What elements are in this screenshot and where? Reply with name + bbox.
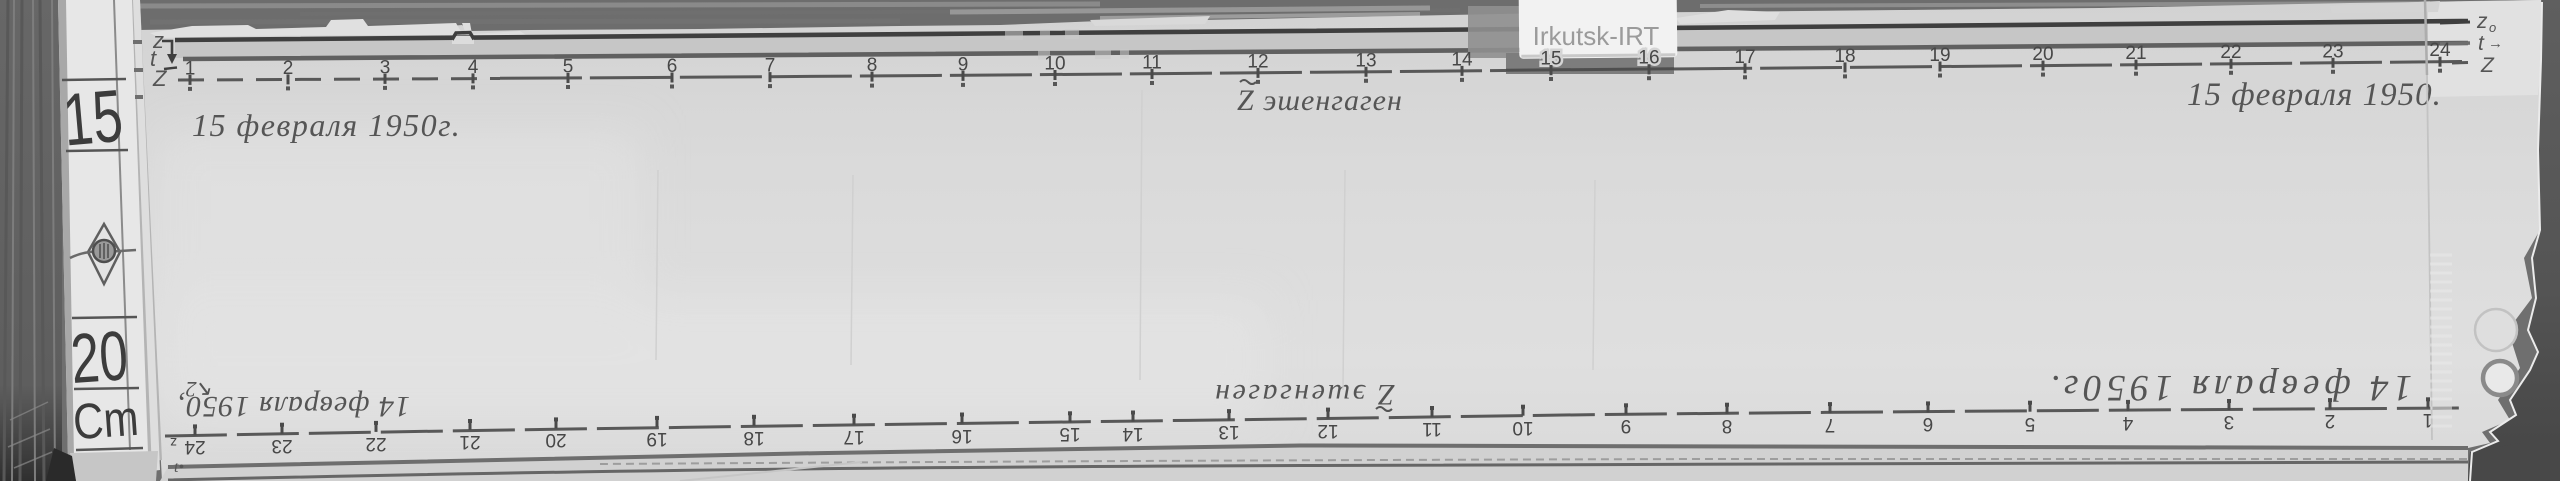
svg-text:t•: t• — [174, 459, 184, 476]
svg-text:20: 20 — [545, 429, 566, 450]
svg-text:14 февраля 1950г.: 14 февраля 1950г. — [2045, 367, 2412, 408]
svg-text:22: 22 — [365, 433, 386, 454]
svg-text:Cm: Cm — [71, 389, 140, 450]
svg-text:7: 7 — [1825, 414, 1836, 435]
svg-text:10: 10 — [1512, 417, 1533, 438]
svg-text:↖2: ↖2 — [186, 377, 215, 402]
svg-text:12: 12 — [1317, 420, 1338, 441]
svg-text:o: o — [2489, 20, 2496, 35]
svg-text:8: 8 — [1722, 415, 1733, 436]
svg-text:6: 6 — [1923, 413, 1934, 434]
svg-text:15 февраля 1950г.: 15 февраля 1950г. — [192, 107, 461, 143]
svg-text:z: z — [170, 435, 177, 451]
svg-text:24: 24 — [184, 436, 206, 457]
svg-text:→: → — [2488, 35, 2503, 52]
svg-text:23: 23 — [271, 435, 292, 456]
svg-text:15: 15 — [60, 74, 126, 161]
svg-text:15: 15 — [1059, 423, 1080, 444]
svg-text:4: 4 — [2122, 412, 2133, 433]
svg-text:Irkutsk-IRT: Irkutsk-IRT — [1533, 21, 1660, 51]
svg-text:13: 13 — [1218, 421, 1239, 442]
svg-text:3: 3 — [2224, 411, 2235, 432]
svg-text:Z: Z — [2480, 54, 2495, 77]
svg-text:16: 16 — [951, 425, 972, 446]
svg-text:2: 2 — [2325, 410, 2336, 431]
svg-text:14: 14 — [1122, 423, 1144, 444]
svg-text:17: 17 — [843, 426, 864, 447]
svg-text:15 февраля 1950.: 15 февраля 1950. — [2187, 77, 2442, 113]
svg-text:Z эшенгаген: Z эшенгаген — [1213, 378, 1395, 411]
svg-text:11: 11 — [1422, 418, 1442, 439]
svg-text:21: 21 — [459, 431, 480, 452]
svg-text:9: 9 — [1621, 415, 1632, 436]
svg-text:20: 20 — [68, 316, 130, 397]
svg-text:z: z — [2476, 10, 2488, 33]
svg-text:Z эшенгаген: Z эшенгаген — [1237, 84, 1403, 117]
svg-text:19: 19 — [646, 428, 667, 449]
svg-text:18: 18 — [743, 427, 764, 448]
svg-text:5: 5 — [2025, 413, 2036, 434]
